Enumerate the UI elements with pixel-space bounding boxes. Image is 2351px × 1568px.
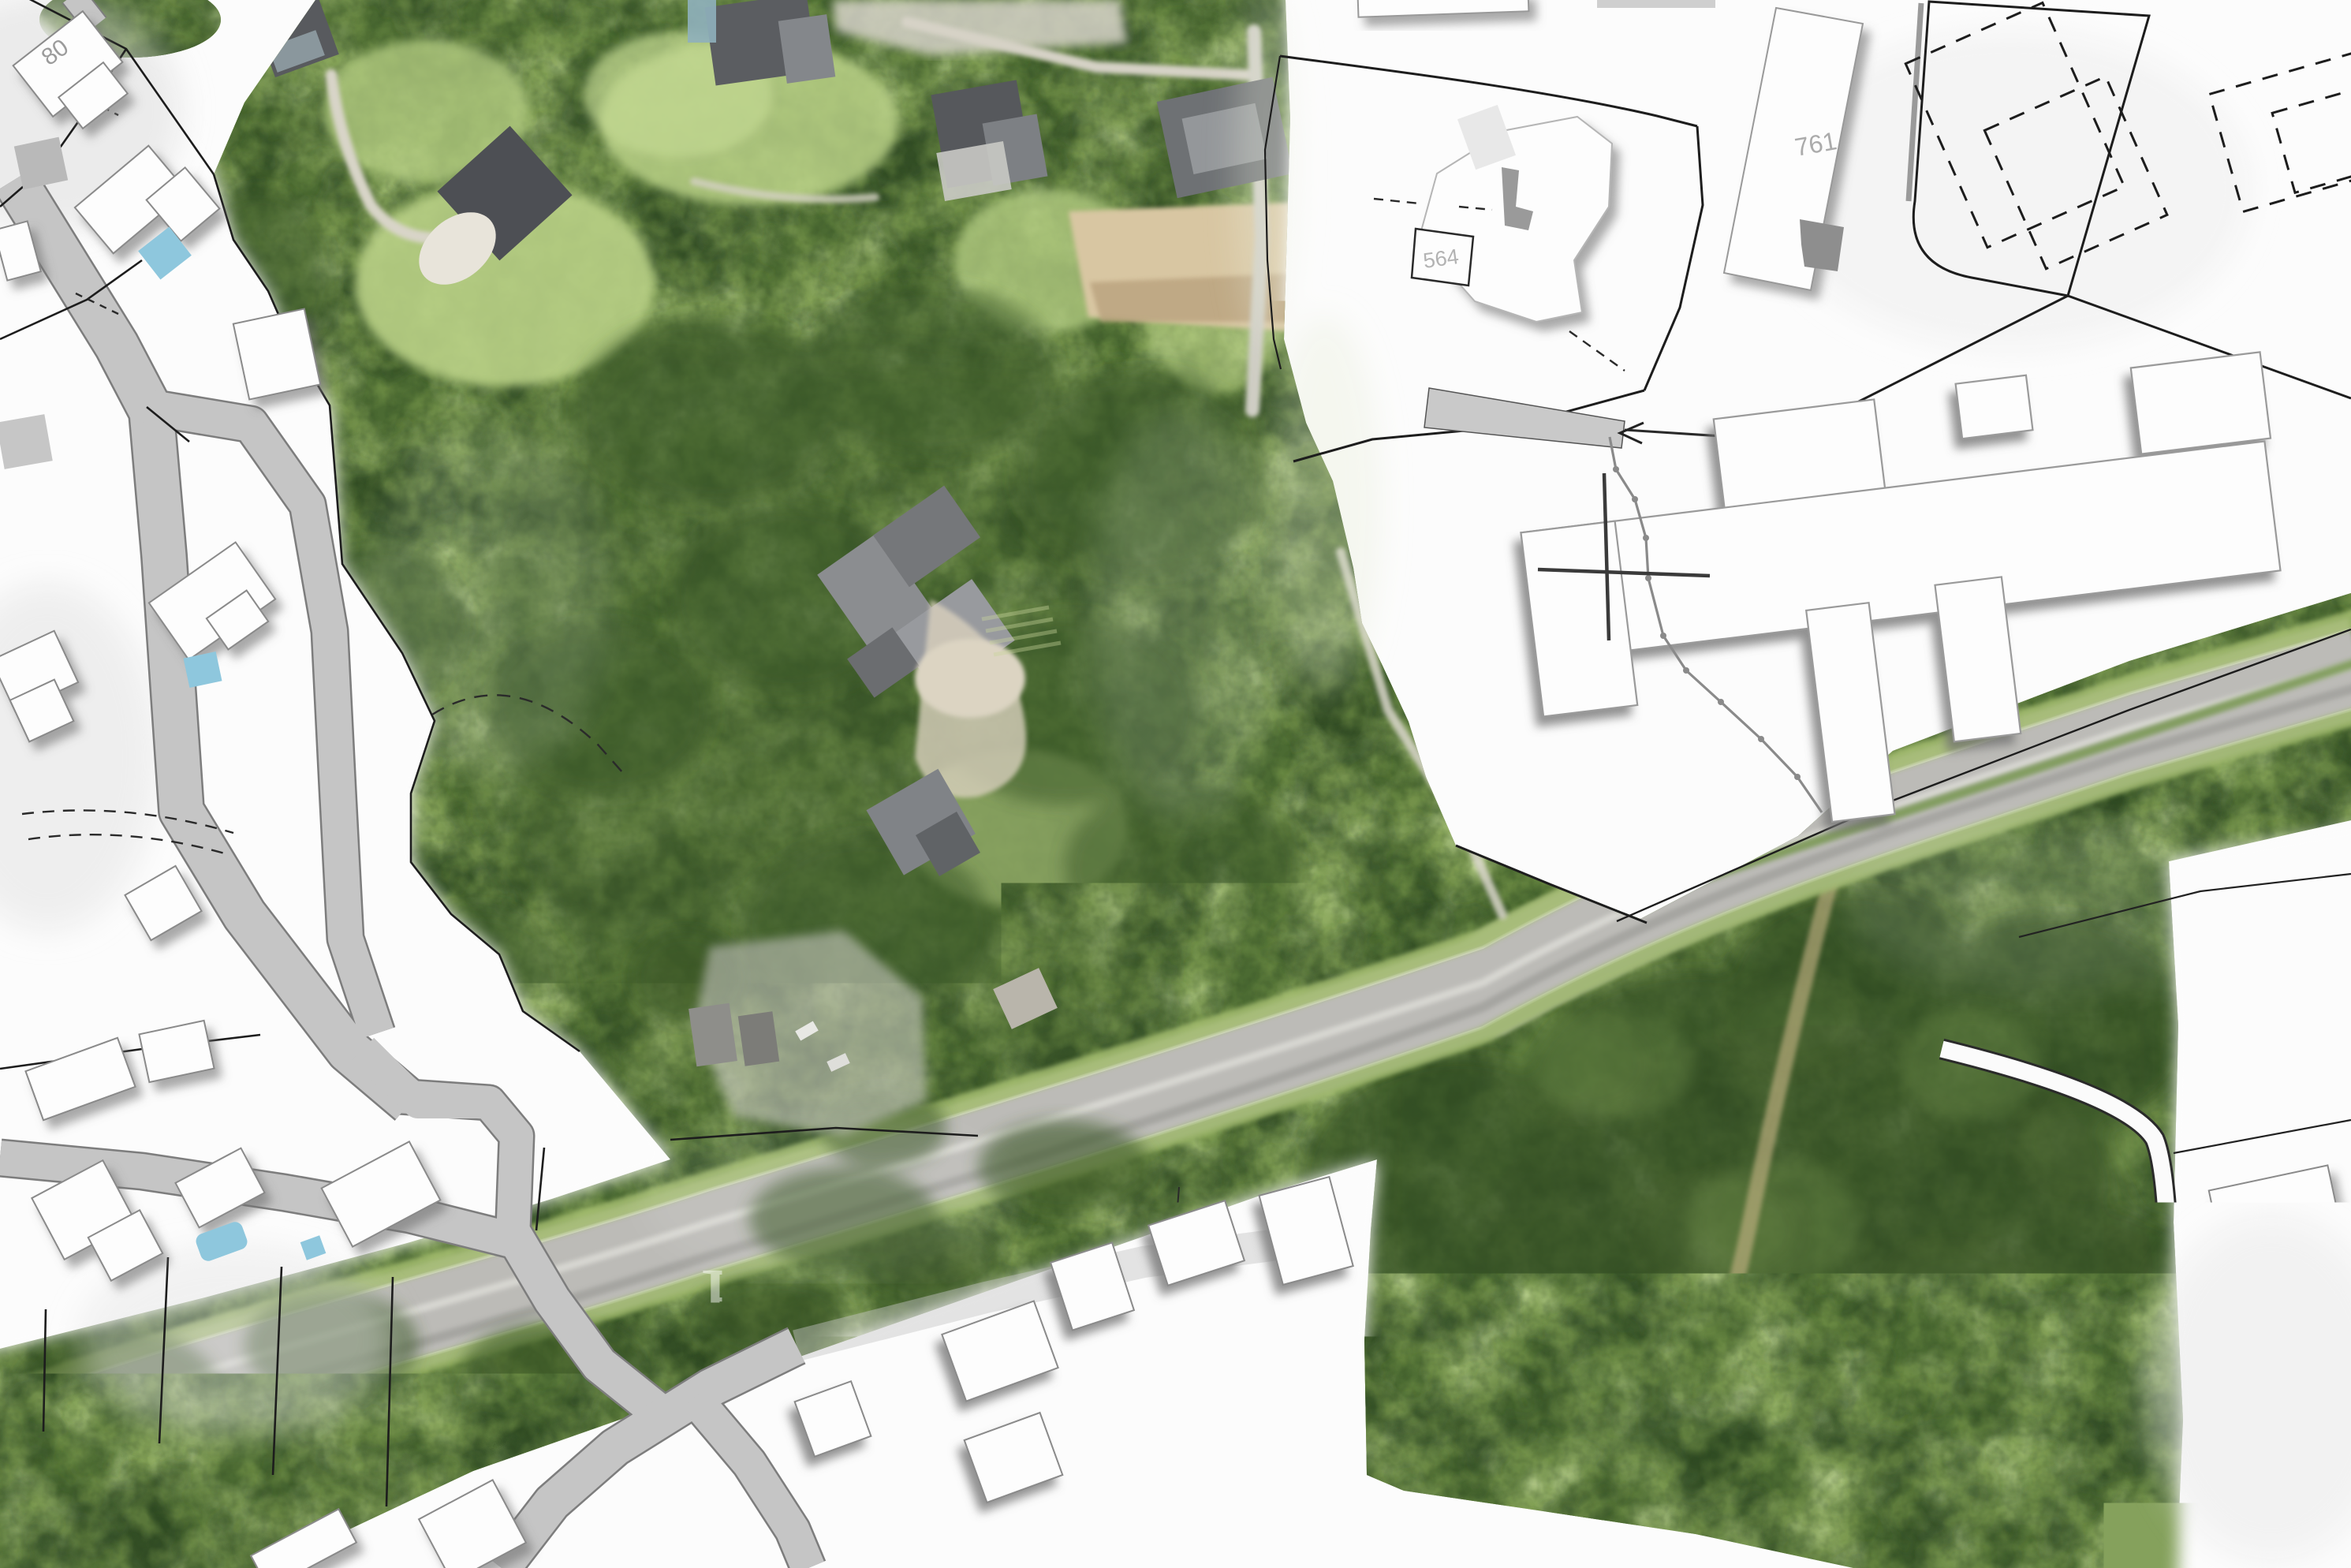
svg-text:R: R bbox=[1384, 1255, 1446, 1358]
svg-text:O: O bbox=[777, 1250, 844, 1353]
svg-text:R: R bbox=[1366, 1384, 1398, 1436]
svg-text:B: B bbox=[700, 1249, 763, 1352]
svg-text:E: E bbox=[1580, 1258, 1636, 1361]
svg-text:T: T bbox=[1483, 1256, 1539, 1360]
svg-text:564: 564 bbox=[1422, 245, 1461, 273]
svg-text:E: E bbox=[1418, 1387, 1447, 1439]
